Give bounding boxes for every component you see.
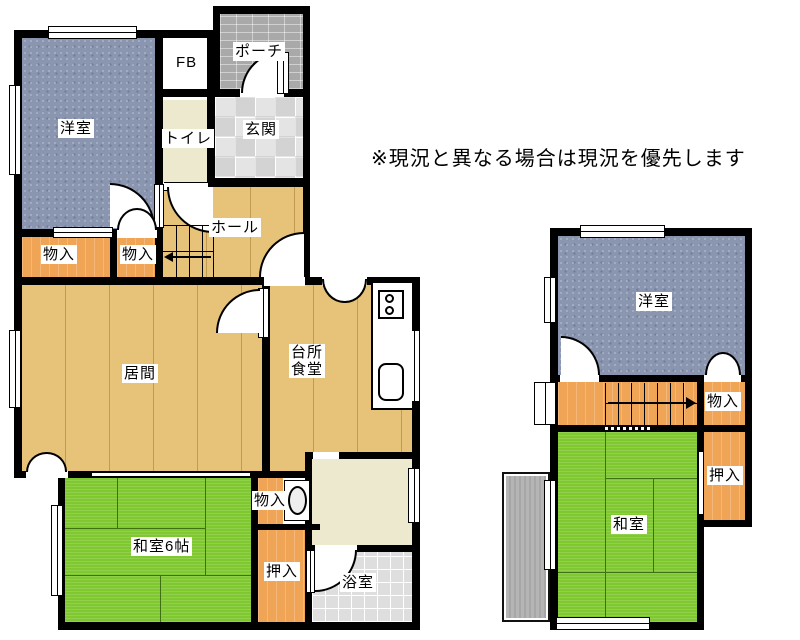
- sliding-door: [92, 472, 250, 477]
- stair-tread: [631, 383, 632, 425]
- open-ceiling-dashed: [605, 427, 650, 430]
- double-door: [117, 208, 157, 230]
- stair-tread: [683, 383, 684, 425]
- window: [544, 480, 556, 570]
- wall: [155, 31, 163, 278]
- disclaimer-note: ※現況と異なる場合は現況を優先します: [371, 142, 746, 171]
- stair-tread: [670, 383, 671, 425]
- tatami-line: [205, 478, 206, 575]
- room-label-closet-1f: 押入: [264, 562, 300, 581]
- tatami-line: [65, 528, 205, 529]
- stairs-arrow-line: [172, 256, 211, 258]
- wall: [58, 622, 412, 630]
- window: [48, 26, 137, 39]
- double-door: [322, 279, 367, 303]
- window: [9, 85, 21, 175]
- door-opening: [313, 452, 339, 459]
- door-opening: [560, 375, 599, 382]
- stove-burner: [385, 306, 394, 315]
- door-opening: [26, 471, 68, 478]
- tatami-line: [605, 572, 606, 622]
- room-label-toilet: トイレ: [162, 129, 214, 148]
- door-opening: [117, 229, 157, 238]
- window: [544, 277, 556, 323]
- door-opening: [264, 277, 305, 286]
- room-label-kitchen-line2: 食堂: [291, 361, 323, 378]
- stairs-arrow-line: [608, 402, 688, 404]
- double-door: [705, 352, 741, 375]
- room-label-hall: ホール: [209, 218, 261, 237]
- double-door: [26, 452, 67, 472]
- wall: [207, 31, 215, 187]
- room-kitchen-passage: [270, 452, 307, 471]
- tatami-line: [653, 478, 654, 572]
- tatami-line: [117, 478, 118, 528]
- wall: [305, 452, 312, 622]
- room-label-storage-b: 物入: [120, 245, 156, 264]
- stair-tread: [618, 383, 619, 425]
- stairs-arrow-head: [164, 252, 173, 262]
- wall: [550, 425, 752, 432]
- wall: [110, 237, 117, 277]
- tatami-line: [65, 575, 251, 576]
- window: [408, 468, 420, 523]
- room-label-storage-a: 物入: [41, 245, 77, 264]
- room-label-closet-2f: 押入: [707, 466, 743, 485]
- stair-tread: [644, 383, 645, 425]
- sliding-door: [698, 452, 704, 514]
- sink: [378, 363, 404, 401]
- stair-tread: [657, 383, 658, 425]
- stove-burner: [385, 294, 394, 303]
- room-label-western-2f: 洋室: [636, 292, 672, 311]
- window: [580, 225, 665, 238]
- room-label-bath: 浴室: [340, 573, 376, 592]
- wall: [303, 6, 310, 278]
- tatami-line: [605, 432, 606, 572]
- room-label-porch: ポーチ: [233, 42, 285, 61]
- room-label-kitchen: 台所 食堂: [289, 344, 325, 378]
- room-label-western-1f: 洋室: [58, 119, 94, 138]
- room-label-entry: 玄関: [243, 120, 279, 139]
- room-label-tatami-1f: 和室6帖: [131, 537, 192, 556]
- door-leaf: [306, 550, 315, 593]
- tatami-line: [160, 575, 161, 622]
- stairs-outline: [163, 225, 213, 226]
- tatami-line: [558, 572, 697, 573]
- room-label-storage-2f: 物入: [705, 392, 741, 411]
- floor-plan: 洋室 FB ポーチ トイレ 玄関 ホール 物入 物入 居間 台所 食堂 和室6帖…: [0, 0, 800, 640]
- basin: [288, 486, 307, 515]
- room-label-kitchen-line1: 台所: [291, 344, 323, 361]
- stairs-arrow-head: [686, 397, 696, 409]
- wall: [215, 178, 303, 187]
- window: [556, 617, 650, 630]
- window: [534, 382, 556, 425]
- tatami-line: [605, 478, 697, 479]
- room-washroom: [312, 452, 412, 545]
- balcony: [502, 472, 550, 622]
- sliding-door: [53, 227, 113, 238]
- room-label-tatami-2f: 和室: [611, 515, 647, 534]
- wall: [213, 6, 310, 14]
- stair-tread: [605, 383, 606, 425]
- window: [51, 505, 63, 596]
- room-label-fb: FB: [174, 53, 199, 72]
- wall: [697, 520, 752, 527]
- room-label-living: 居間: [122, 364, 158, 383]
- door-opening: [704, 375, 741, 382]
- room-label-storage-c: 物入: [252, 491, 288, 510]
- window: [9, 330, 21, 408]
